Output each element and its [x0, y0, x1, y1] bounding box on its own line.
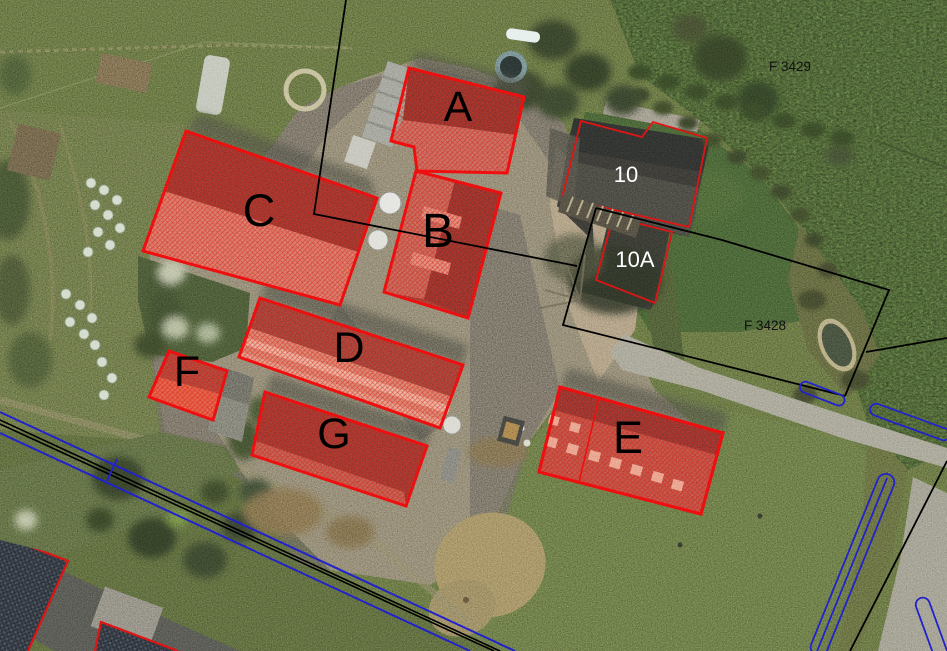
- svg-text:A: A: [444, 83, 473, 131]
- svg-text:E: E: [613, 412, 643, 463]
- svg-text:C: C: [243, 185, 276, 236]
- svg-text:F 3429: F 3429: [769, 59, 811, 74]
- svg-text:D: D: [333, 324, 364, 372]
- svg-text:10A: 10A: [615, 247, 654, 272]
- svg-text:F: F: [174, 348, 200, 396]
- svg-text:F 3428: F 3428: [744, 318, 786, 333]
- svg-text:G: G: [317, 410, 350, 458]
- svg-text:10: 10: [614, 162, 638, 187]
- svg-text:B: B: [422, 205, 454, 258]
